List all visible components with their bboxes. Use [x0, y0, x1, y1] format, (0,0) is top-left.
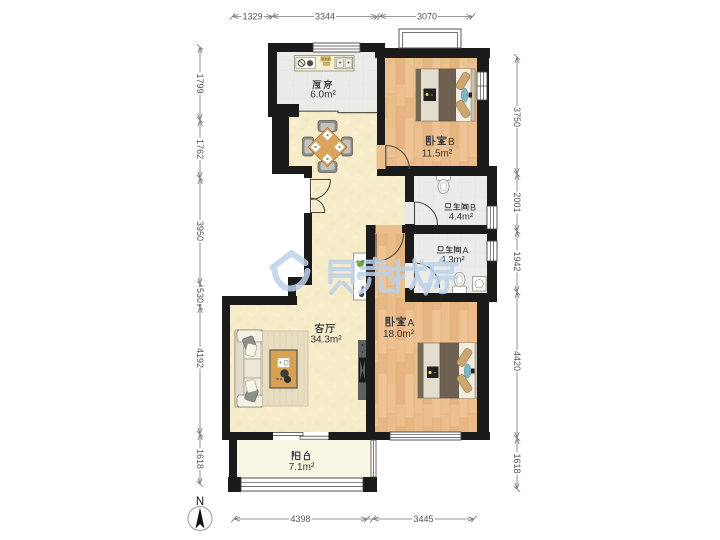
svg-text:34.3m²: 34.3m² — [310, 334, 342, 345]
svg-text:4.4m²: 4.4m² — [449, 212, 473, 223]
svg-text:3344: 3344 — [315, 12, 335, 22]
svg-text:2001: 2001 — [512, 192, 522, 212]
svg-text:1618: 1618 — [512, 453, 522, 473]
svg-text:4398: 4398 — [290, 514, 310, 524]
svg-text:11.5m²: 11.5m² — [422, 148, 453, 159]
svg-text:A: A — [408, 318, 415, 329]
svg-text:7.1m²: 7.1m² — [289, 462, 315, 473]
svg-text:4192: 4192 — [195, 348, 205, 368]
svg-text:1942: 1942 — [512, 251, 522, 271]
svg-text:3950: 3950 — [195, 221, 205, 241]
svg-text:18.0m²: 18.0m² — [383, 329, 415, 340]
svg-text:1799: 1799 — [195, 73, 205, 93]
svg-text:4420: 4420 — [512, 351, 522, 371]
svg-text:3445: 3445 — [413, 514, 433, 524]
svg-text:6.0m²: 6.0m² — [310, 90, 336, 101]
svg-text:3750: 3750 — [512, 107, 522, 127]
svg-text:530: 530 — [195, 288, 205, 303]
svg-text:B: B — [448, 137, 455, 148]
svg-text:1329: 1329 — [242, 12, 262, 22]
svg-text:3070: 3070 — [417, 12, 437, 22]
svg-text:1618: 1618 — [195, 449, 205, 469]
svg-text:1762: 1762 — [195, 139, 205, 159]
